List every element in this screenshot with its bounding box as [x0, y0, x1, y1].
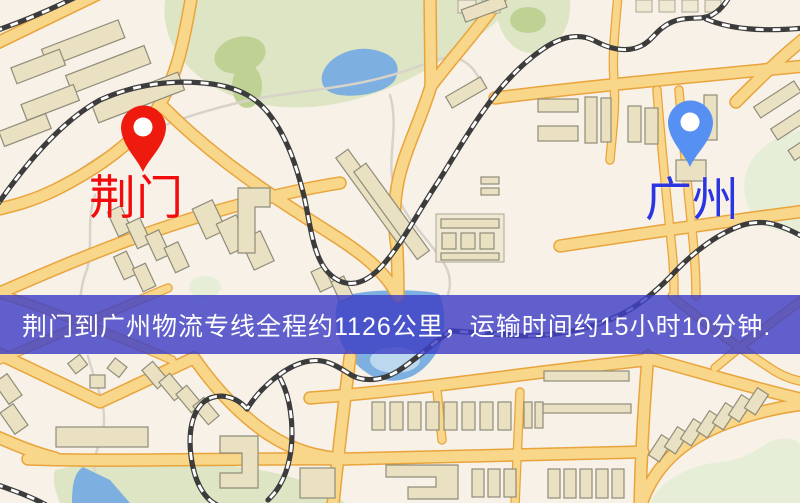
- origin-city-label: 荆门: [89, 176, 183, 223]
- route-info-banner: 荆门到广州物流专线全程约1126公里，运输时间约15小时10分钟.: [0, 295, 800, 354]
- map-canvas: [0, 0, 800, 503]
- route-info-text: 荆门到广州物流专线全程约1126公里，运输时间约15小时10分钟.: [22, 307, 771, 343]
- destination-city-label: 广州: [645, 178, 739, 225]
- map-image: 荆门 广州 荆门到广州物流专线全程约1126公里，运输时间约15小时10分钟.: [0, 0, 800, 503]
